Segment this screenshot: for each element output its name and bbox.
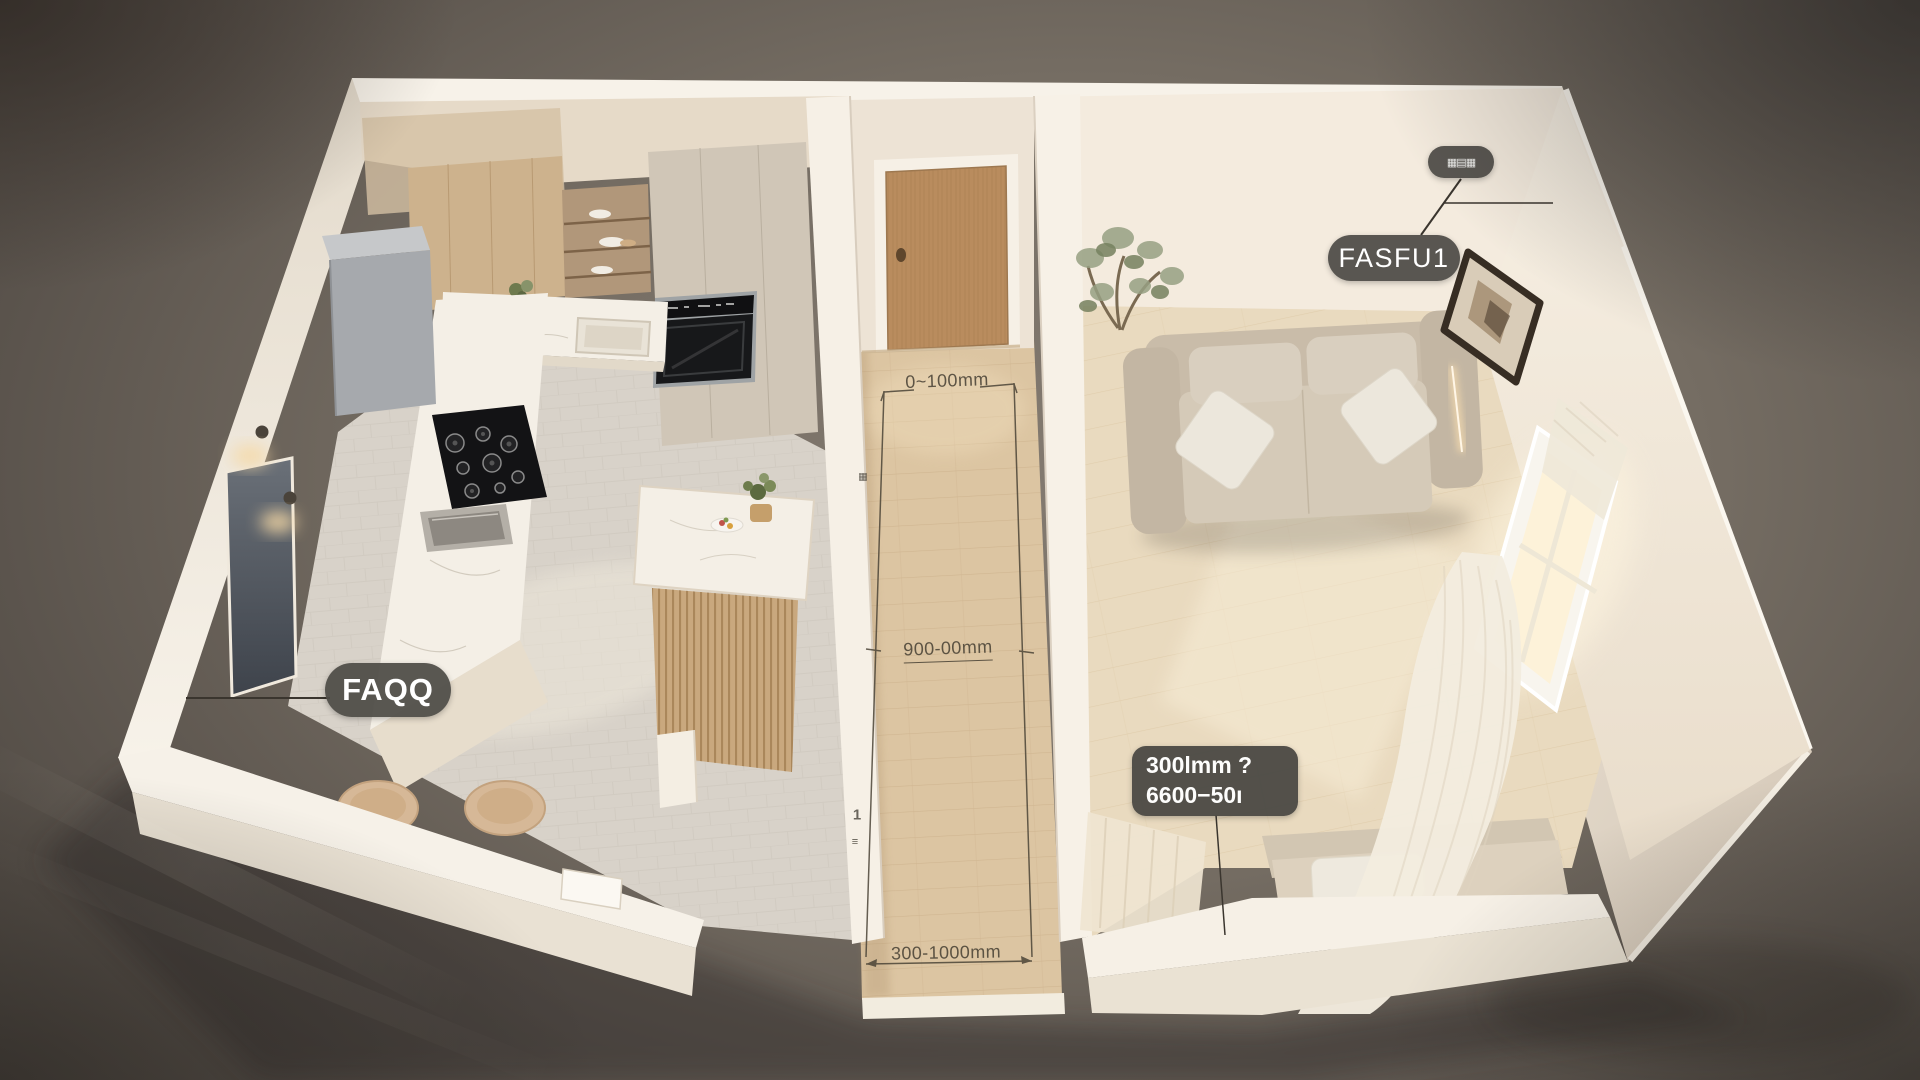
food-plate: [711, 518, 743, 533]
dimension-top: 0~100mm: [905, 369, 989, 393]
island-plant-pot: [750, 504, 772, 522]
wall-mark-glyph: ≡: [852, 836, 858, 848]
annotation-chip[interactable]: ▦▤▦: [1428, 146, 1494, 178]
room-tag-living[interactable]: FASFU1: [1328, 235, 1460, 281]
fridge: [322, 226, 436, 416]
kitchen-island: [634, 473, 814, 772]
info-box-line2: 6600−50ı: [1146, 781, 1298, 811]
floorplan-stage: ▦▤▦ FASFU1 FAQQ 300lmm ? 6600−50ı 0~100m…: [0, 0, 1920, 1080]
kitchen-sink-basin: [420, 504, 513, 552]
dimension-bottom: 300-1000mm: [891, 942, 1001, 965]
room-tag-kitchen[interactable]: FAQQ: [325, 663, 451, 717]
wall-mark-number: 1: [853, 807, 861, 824]
wall-mark-upper: ▦: [858, 472, 867, 483]
room-tag-living-text: FASFU1: [1338, 243, 1449, 274]
info-box-line1: 300lmm ?: [1146, 751, 1298, 781]
floorplan-render: [0, 0, 1920, 1080]
dimension-middle: 900-00mm: [903, 636, 993, 663]
entry-door: [862, 154, 1020, 352]
annotation-chip-text: ▦▤▦: [1447, 156, 1475, 169]
sofa: [1121, 309, 1487, 561]
oven: [653, 291, 757, 388]
measurement-info-box[interactable]: 300lmm ? 6600−50ı: [1132, 746, 1298, 816]
room-tag-kitchen-text: FAQQ: [342, 672, 434, 708]
door-handle: [896, 248, 906, 262]
